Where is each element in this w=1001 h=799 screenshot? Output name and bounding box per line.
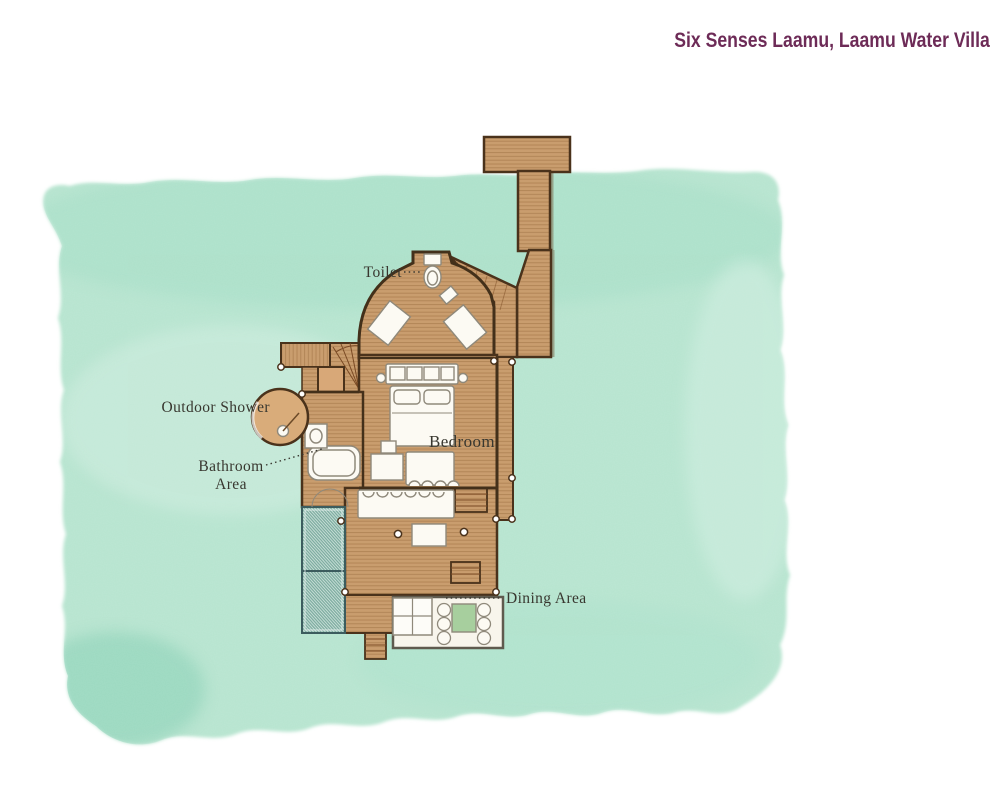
entry-closet (318, 367, 344, 392)
label-toilet: Toilet (364, 264, 403, 281)
label-bathroom-line1: Bathroom (198, 458, 263, 475)
label-outdoor-shower: Outdoor Shower (162, 399, 271, 416)
daybed (406, 452, 459, 486)
label-bedroom: Bedroom (429, 432, 495, 451)
deck-table (412, 524, 446, 546)
net-hammock-panels (302, 507, 345, 633)
villa-floor-plan-illustration: Toilet Outdoor Shower Bathroom Area Bedr… (0, 0, 1001, 799)
dining-room (393, 597, 503, 648)
deck-sofa (358, 490, 454, 518)
south-deck-strip (345, 595, 393, 633)
label-dining-area: Dining Area (506, 590, 587, 607)
outdoor-shower-deck (252, 389, 308, 445)
walkway-jetty (518, 171, 550, 251)
toilet-fixture (424, 254, 441, 288)
page: Toilet Outdoor Shower Bathroom Area Bedr… (0, 0, 1001, 799)
walkway-t-bar (484, 137, 570, 172)
label-bathroom-line2: Area (215, 476, 247, 493)
dining-table (452, 604, 476, 632)
page-title: Six Senses Laamu, Laamu Water Villa (674, 28, 990, 53)
vanity (305, 424, 327, 448)
east-balcony (497, 357, 513, 520)
